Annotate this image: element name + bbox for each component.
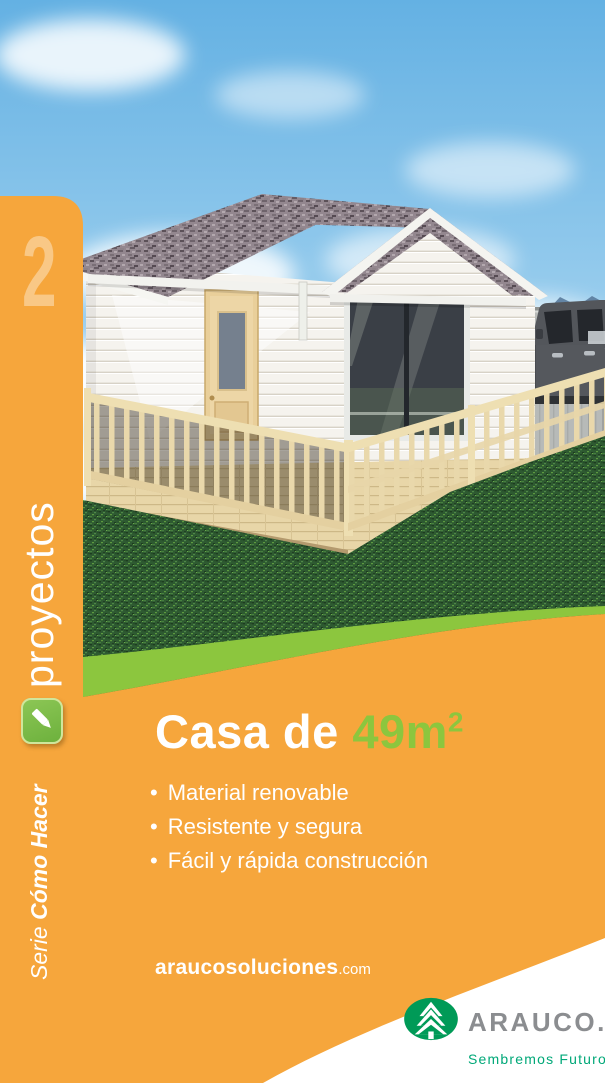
logo-tagline: Sembremos Futuro <box>468 1051 602 1067</box>
series-prefix: Serie <box>26 920 52 980</box>
list-item: • Fácil y rápida construcción <box>150 844 428 878</box>
title-area-value: 49m <box>352 705 448 758</box>
website-tld: .com <box>338 961 371 978</box>
title-area-sup: 2 <box>448 706 464 737</box>
issue-number: 2 <box>22 222 56 322</box>
feature-text: Material renovable <box>168 776 349 810</box>
arauco-tree-icon <box>402 996 460 1047</box>
feature-text: Resistente y segura <box>168 810 362 844</box>
bullet-icon: • <box>150 844 158 878</box>
website-name: araucosoluciones <box>155 956 338 979</box>
series-title-vertical: proyectos <box>16 488 63 688</box>
website-link[interactable]: araucosoluciones.com <box>155 956 371 980</box>
pencil-icon <box>27 703 57 740</box>
list-item: • Resistente y segura <box>150 810 428 844</box>
house-photo <box>0 0 605 700</box>
series-name: Cómo Hacer <box>26 784 52 919</box>
house-photo-svg <box>0 0 605 700</box>
arauco-logo: ARAUCO. Sembremos Futuro <box>402 996 602 1067</box>
pencil-badge <box>21 698 63 744</box>
series-label-vertical: Serie Cómo Hacer <box>26 760 53 980</box>
page-title: Casa de 49m2 <box>155 704 464 759</box>
feature-list: • Material renovable • Resistente y segu… <box>150 776 428 878</box>
title-text: Casa de <box>155 705 352 758</box>
brochure-cover: 2 proyectos Serie Cómo Hacer Casa de 49m… <box>0 0 605 1083</box>
bullet-icon: • <box>150 776 158 810</box>
bullet-icon: • <box>150 810 158 844</box>
feature-text: Fácil y rápida construcción <box>168 844 428 878</box>
list-item: • Material renovable <box>150 776 428 810</box>
logo-wordmark: ARAUCO. <box>468 1009 605 1035</box>
